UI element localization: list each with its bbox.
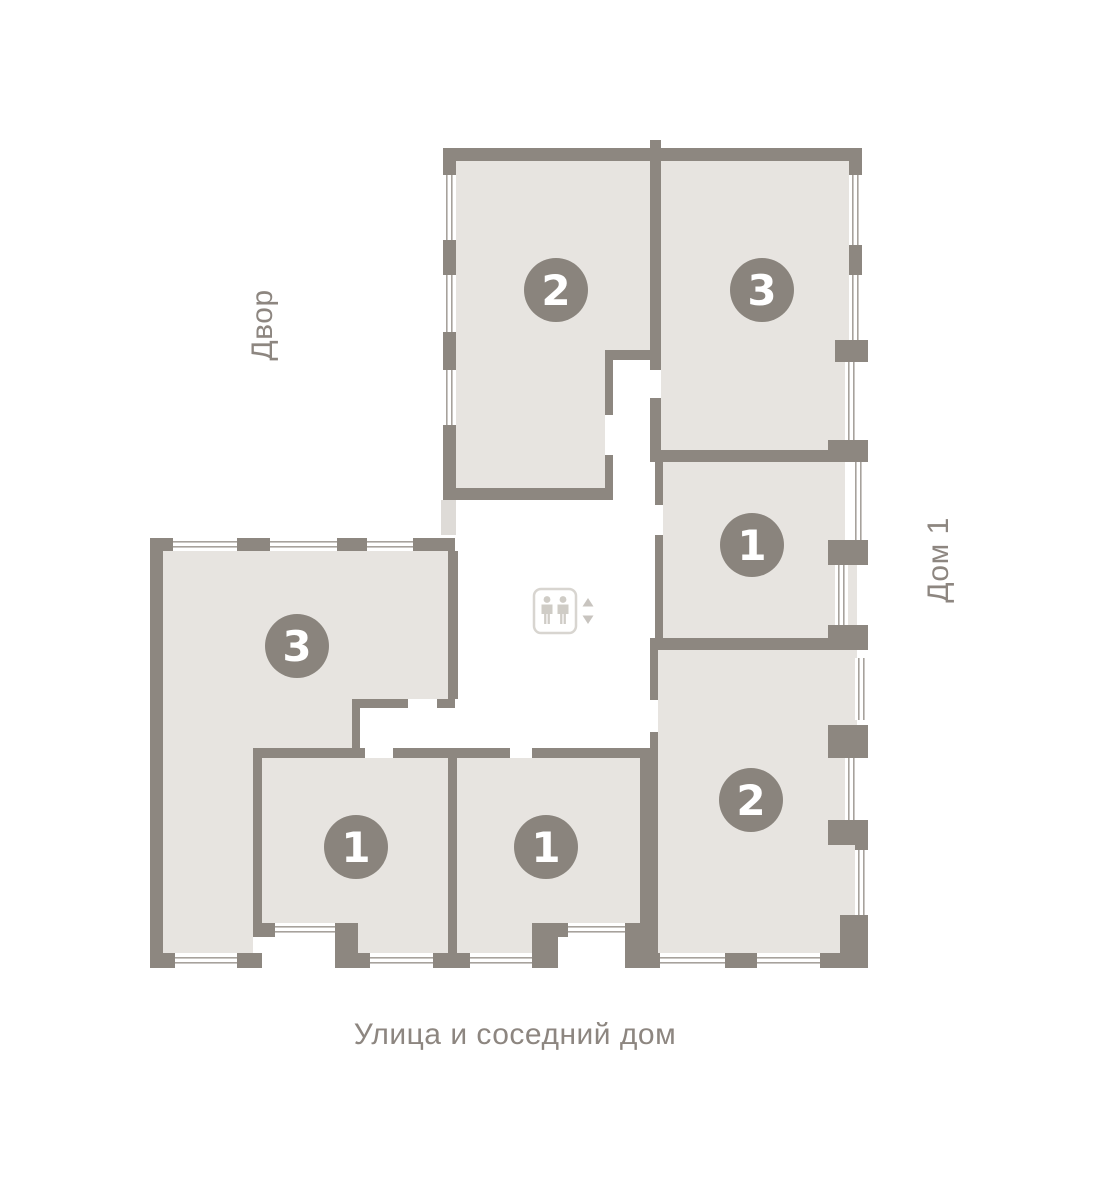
window	[568, 923, 625, 937]
window	[443, 370, 456, 425]
apartment-badge[interactable]: 1	[514, 815, 578, 879]
person-icon	[542, 596, 553, 624]
window	[175, 953, 237, 968]
window	[845, 362, 858, 440]
window	[835, 565, 848, 625]
apartment-2-top[interactable]	[456, 161, 650, 488]
window	[660, 953, 725, 968]
window	[443, 175, 456, 240]
window	[849, 175, 862, 245]
door-opening	[655, 505, 663, 535]
apartment-badge[interactable]: 3	[265, 614, 329, 678]
door-opening	[510, 748, 532, 758]
apartment-badge[interactable]: 1	[324, 815, 388, 879]
apartment-badge[interactable]: 2	[524, 258, 588, 322]
window	[443, 275, 456, 332]
door-opening	[650, 370, 661, 398]
badge-number: 1	[737, 521, 766, 570]
badge-number: 1	[531, 823, 560, 872]
apartment-area[interactable]	[456, 161, 650, 488]
window	[849, 275, 862, 340]
person-icon	[558, 596, 569, 624]
door-opening	[605, 415, 613, 455]
apartment-badge[interactable]: 1	[720, 513, 784, 577]
window	[757, 953, 820, 968]
window	[845, 758, 858, 820]
label-street: Улица и соседний дом	[354, 1018, 676, 1051]
elevator-icon	[534, 589, 594, 633]
arrow-down-icon	[583, 616, 594, 625]
window	[270, 538, 337, 551]
apartment-badge[interactable]: 3	[730, 258, 794, 322]
door-opening	[408, 699, 437, 708]
badge-number: 1	[341, 823, 370, 872]
badge-number: 2	[736, 776, 765, 825]
apartment-badge[interactable]: 2	[719, 768, 783, 832]
door-opening	[650, 700, 658, 732]
window	[470, 953, 532, 968]
badge-number: 3	[747, 266, 776, 315]
floor-plan: 2 3 1 2 3 1 1	[0, 0, 1105, 1200]
window	[173, 538, 237, 551]
window	[370, 953, 433, 968]
window	[275, 923, 335, 937]
door-opening	[365, 748, 393, 758]
arrow-up-icon	[583, 598, 594, 607]
window	[852, 462, 865, 540]
window	[855, 658, 868, 720]
window	[367, 538, 413, 551]
floor-plan-page: 2 3 1 2 3 1 1	[0, 0, 1105, 1200]
badge-number: 2	[541, 266, 570, 315]
window	[855, 850, 868, 915]
badge-number: 3	[282, 622, 311, 671]
label-house: Дом 1	[922, 517, 955, 602]
label-courtyard: Двор	[246, 289, 279, 360]
